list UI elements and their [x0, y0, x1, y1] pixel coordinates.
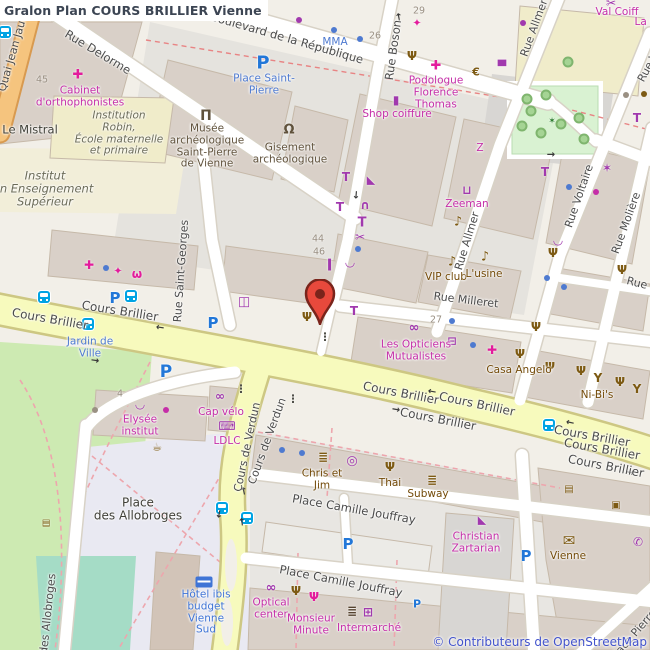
tree-icon: [517, 121, 528, 132]
phone-icon: ✆: [633, 536, 643, 548]
pharmacy-icon: ✚: [487, 344, 497, 356]
map-dot: [520, 20, 526, 26]
poi-label-christian-zartarian: ChristianZartarian: [452, 531, 501, 555]
map-dot: [92, 407, 98, 413]
poi-label-la-c: La C: [635, 17, 650, 29]
house-number: 46: [313, 247, 325, 258]
poi-label-place-des-allobroges: Placedes Allobroges: [94, 497, 182, 524]
poi-label-ni-bis: Ni-Bi's: [581, 390, 614, 402]
restaurant-6-icon: Ψ: [515, 348, 525, 360]
poi-label-les-opticiens: Les OpticiensMutualistes: [381, 339, 451, 363]
zeeman-basket-icon: ⊔: [462, 184, 472, 196]
beauty-eyelash-1-icon: ◡: [345, 256, 354, 268]
poi-label-musee-archeologique: MuséearchéologiqueSaint-Pierrede Vienne: [170, 124, 245, 171]
kebab-knife-icon: ▍: [328, 261, 336, 271]
parking-icon: P: [413, 598, 421, 611]
poi-label-val-coiff: Val Coiff: [596, 7, 639, 19]
parking-icon: P: [208, 314, 219, 332]
bus-stop-icon: [38, 291, 50, 303]
hairdresser-pole-icon: ▮: [393, 94, 400, 106]
hotel-bed-icon: [196, 577, 213, 588]
map-dot: [331, 27, 337, 33]
lusine-music-icon: ♪: [481, 251, 489, 264]
poi-label-optical-center: Opticalcenter: [252, 597, 289, 621]
poi-label-place-saint-pierre: Place Saint-Pierre: [233, 73, 295, 97]
tree-icon: [563, 57, 574, 68]
house-number: 29: [413, 6, 425, 17]
map-dot: [355, 246, 361, 252]
parking-icon: P: [521, 547, 532, 565]
bakery-icon: ∩: [360, 199, 370, 211]
poi-label-cabinet-orthophonistes: Cabinetd'orthophonistes: [36, 85, 124, 109]
restaurant-8-icon: Ψ: [576, 365, 586, 377]
clothes-1-icon: T: [342, 171, 350, 183]
map-dot: [470, 342, 476, 348]
poi-label-jardin-de-ville: Jardin deVille: [67, 336, 113, 360]
house-number: 27: [430, 315, 442, 326]
house-number: 4: [117, 389, 123, 400]
restaurant-1-icon: Ψ: [407, 50, 417, 62]
map-dot: [357, 36, 363, 42]
map-marker-icon[interactable]: [303, 279, 337, 329]
post-envelope-icon: ✉: [563, 534, 576, 549]
amphora-icon: Ω: [283, 124, 294, 137]
elysee-eyelash-icon: ◡: [135, 398, 144, 410]
bar-cocktail-1-icon: Y: [594, 372, 603, 384]
monsieur-utensils-icon: Ψ: [309, 591, 319, 603]
poi-label-chris-et-jim: Chris etJim: [302, 468, 343, 492]
map-dot: [279, 447, 285, 453]
bus-stop-icon: [125, 290, 137, 302]
poi-label-le-mistral: Le Mistral: [2, 124, 58, 137]
music-note-1-icon: ♪: [454, 216, 462, 229]
bank-icon: €: [472, 67, 480, 78]
tree-icon: [574, 113, 585, 124]
bar-cocktail-2-icon: Y: [633, 383, 642, 395]
laundry-icon: ◎: [346, 455, 357, 468]
poi-label-ldlc: LDLC: [213, 436, 240, 448]
intermarche-cart-icon: ⊞: [363, 606, 373, 618]
map-dot: [544, 275, 550, 281]
dance-icon: ✶: [602, 162, 612, 174]
chris-burger-icon: ≣: [318, 451, 328, 463]
restaurant-3-icon: Ψ: [548, 247, 558, 259]
poi-label-institution-robin: InstitutionRobin,École maternelleet prim…: [75, 111, 164, 158]
house-number: 45: [36, 75, 48, 86]
map-dot: [593, 189, 599, 195]
map-dot: [641, 91, 647, 97]
map-dot: [561, 284, 567, 290]
poi-label-cap-velo: Cap vélo: [198, 407, 244, 419]
poi-label-l-usine: L'usine: [466, 269, 503, 281]
traffic-light-2-icon: ⋮: [236, 384, 247, 395]
traffic-light-1-icon: ⋮: [320, 332, 331, 343]
shoes-1-icon: ◣: [367, 175, 375, 186]
thai-fork-icon: Ψ: [385, 461, 395, 473]
map-dot: [296, 17, 302, 23]
poi-label-vienne-poste: Vienne: [550, 551, 586, 563]
optical-glasses-icon: ∞: [266, 582, 277, 595]
bicycle-icon: ∞: [215, 390, 225, 402]
map-dot: [566, 184, 572, 190]
map-dot: [623, 92, 629, 98]
opticien-glasses-icon: ∞: [409, 322, 420, 335]
poi-label-hotel-ibis: Hôtel ibisbudgetVienneSud: [181, 590, 230, 637]
poi-label-monsieur-minute: MonsieurMinute: [287, 613, 335, 637]
osm-attribution-link[interactable]: © Contributeurs de OpenStreetMap: [432, 635, 647, 649]
photo-booth-icon: ▣: [611, 501, 620, 511]
oneway-arrow: ↓: [351, 190, 360, 202]
poi-label-zeeman: Zeeman: [445, 199, 488, 211]
poi-label-subway: Subway: [407, 489, 448, 501]
house-number: 44: [312, 234, 324, 245]
laptop-icon: ⌨: [218, 420, 235, 432]
clothes-5-icon: T: [350, 305, 358, 317]
traffic-light-3-icon: ⋮: [288, 394, 299, 405]
tree-icon: [526, 106, 537, 117]
zartarian-shoes-icon: ◣: [478, 515, 486, 526]
poi-label-intermarche: Intermarché: [337, 623, 401, 635]
poi-label-elysee-institut: Elyséeinstitut: [122, 414, 159, 438]
poi-label-shop-coiffure: Shop coiffure: [362, 109, 431, 121]
keys-2-icon: ✦: [113, 266, 122, 277]
museum-icon: Π: [200, 109, 212, 123]
map-dot: [449, 318, 455, 324]
poi-label-casa-angelo: Casa Angelo: [486, 365, 551, 377]
tree-icon: [556, 119, 567, 130]
oneway-arrow: ↑: [237, 517, 247, 529]
tree-icon: [579, 134, 590, 145]
map-dot: [103, 265, 109, 271]
page-title: Gralon Plan COURS BRILLIER Vienne: [0, 0, 268, 21]
kiosk-2-icon: ▤: [564, 485, 573, 495]
podologue-medical-icon: ✚: [431, 60, 442, 73]
subway-burger-icon: ≣: [427, 474, 437, 486]
parking-icon: P: [160, 362, 172, 382]
oneway-arrow: →: [90, 355, 100, 367]
parking-icon: P: [256, 53, 269, 74]
map-dot: [163, 407, 169, 413]
oneway-arrow: →: [547, 150, 555, 161]
clothes-2-icon: T: [336, 201, 344, 213]
monsieur-fork-icon: Ψ: [291, 585, 301, 597]
tree-icon: [536, 128, 547, 139]
coffee-icon: ☕: [152, 442, 162, 453]
restaurant-9-icon: Ψ: [615, 376, 625, 388]
furniture-couch-icon: ▄: [498, 55, 506, 66]
hairdresser-2-icon: ✂: [355, 231, 365, 243]
locksmith-keys-icon: ✦: [412, 18, 421, 29]
restaurant-4-icon: Ψ: [617, 264, 627, 276]
tree-icon: [522, 94, 533, 105]
poi-label-thai: Thai: [379, 478, 401, 490]
clothes-3-icon: T: [358, 217, 367, 230]
poi-label-gisement-archeologique: Gisementarchéologique: [253, 142, 328, 166]
beauty-eyelash-2-icon: ◡: [553, 234, 562, 246]
clothes-6-icon: T: [541, 166, 549, 178]
house-number: 26: [369, 31, 381, 42]
restaurant-5-icon: Ψ: [531, 321, 541, 333]
poi-label-z-shop: Z: [476, 143, 483, 155]
map-dot: [299, 450, 305, 456]
playground-icon: ✶: [548, 118, 556, 127]
clothes-7-icon: T: [633, 112, 641, 124]
bench-icon: ▤: [42, 520, 51, 529]
parking-icon: P: [343, 535, 354, 553]
poi-label-vip-club: VIP club: [425, 272, 467, 284]
poi-label-institut-superieur: Institutin EnseignementSupérieur: [0, 170, 93, 209]
medical-2-icon: ✚: [84, 259, 94, 271]
poi-label-podologue: PodologueFlorenceThomas: [409, 75, 464, 110]
tree-icon: [541, 90, 552, 101]
map-canvas[interactable]: Gralon Plan COURS BRILLIER Vienne © Cont…: [0, 0, 650, 650]
intermarche-burger-icon: ≣: [347, 605, 357, 617]
dentist-tooth-icon: ω: [132, 268, 142, 280]
orthophoniste-medical-icon: ✚: [73, 69, 84, 82]
books-icon: ◫: [238, 296, 250, 309]
